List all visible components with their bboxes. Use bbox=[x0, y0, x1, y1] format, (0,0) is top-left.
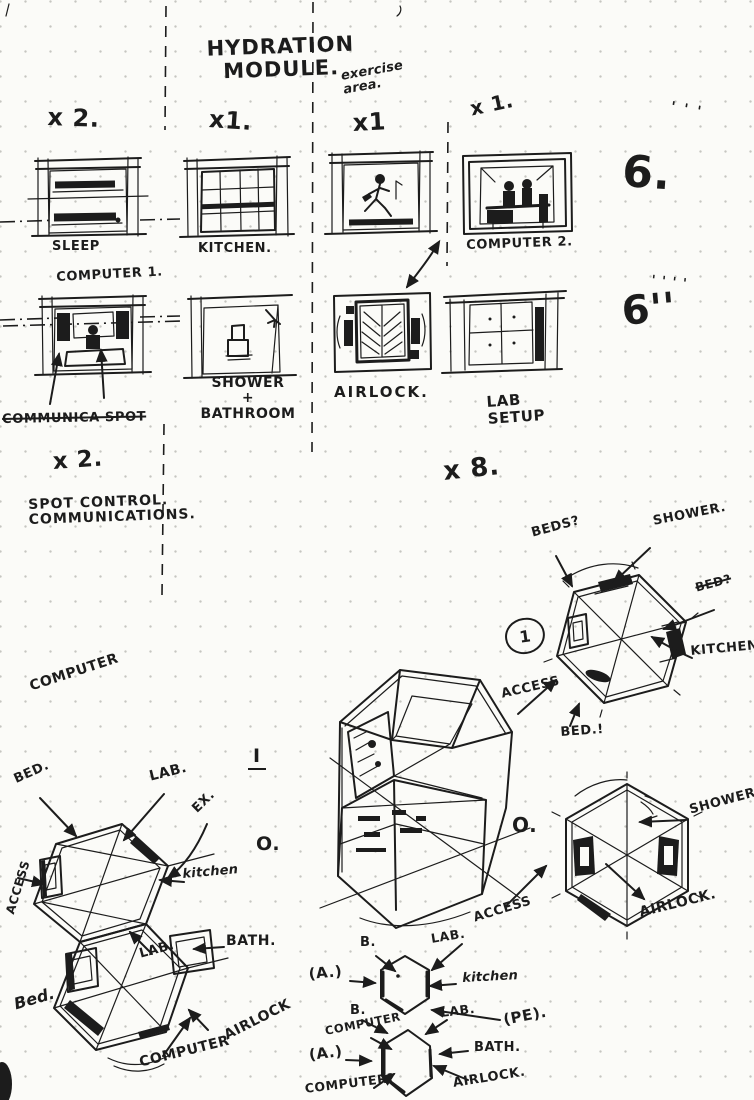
exercise-airlock-arrow bbox=[407, 250, 434, 287]
sketchbook-page: HYDRATION MODULE. exercise area. x 2. x1… bbox=[0, 0, 754, 1100]
annotation-arrows-overlay bbox=[0, 0, 754, 1100]
